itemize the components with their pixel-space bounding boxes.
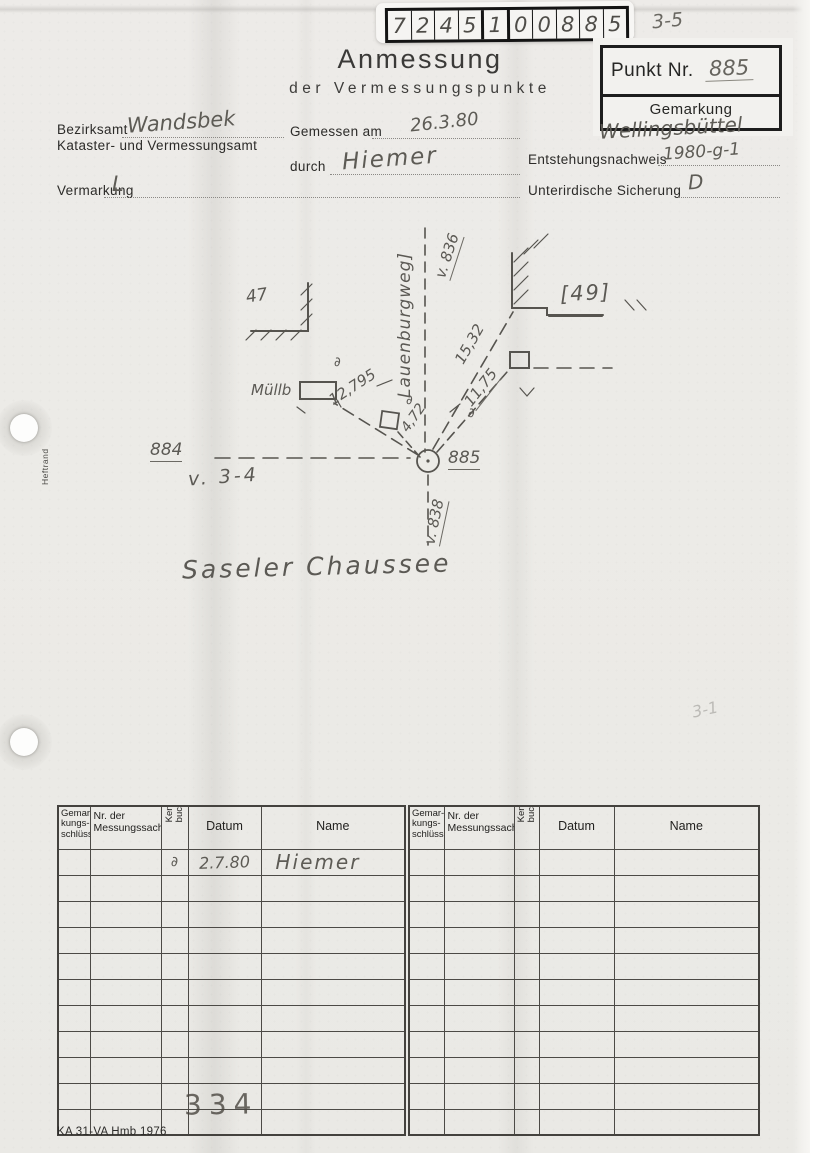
table-row bbox=[58, 901, 405, 927]
entstehungsnachweis-line bbox=[658, 164, 780, 166]
table-row: ∂2.7.80Hiemer bbox=[58, 849, 405, 875]
table-cell bbox=[58, 875, 90, 901]
col-kennbuchst: Kenn- buchst. bbox=[514, 806, 539, 849]
table-row bbox=[409, 927, 759, 953]
table-header-row: Gemar- kungs- schlüssel Nr. der Messungs… bbox=[58, 806, 405, 849]
table-row bbox=[58, 875, 405, 901]
table-cell bbox=[444, 1083, 514, 1109]
table-cell bbox=[614, 1083, 759, 1109]
digit-cell: 1 bbox=[484, 10, 510, 39]
table-cell bbox=[261, 1057, 405, 1083]
table-cell bbox=[539, 849, 614, 875]
table-cell bbox=[261, 1005, 405, 1031]
table-cell bbox=[444, 1057, 514, 1083]
table-cell bbox=[514, 1109, 539, 1135]
table-row bbox=[58, 927, 405, 953]
table-row bbox=[409, 849, 759, 875]
table-cell bbox=[90, 901, 161, 927]
table-cell bbox=[614, 1005, 759, 1031]
table-cell: 2.7.80 bbox=[188, 848, 262, 877]
table-cell bbox=[409, 901, 444, 927]
table-cell bbox=[58, 849, 90, 875]
table-cell bbox=[514, 979, 539, 1005]
table-cell bbox=[514, 875, 539, 901]
table-cell bbox=[444, 927, 514, 953]
scanned-survey-form: Heftrand 7245100885 3-5 Anmessung der Ve… bbox=[0, 0, 824, 1169]
punch-hole-opening bbox=[10, 414, 38, 442]
table-cell bbox=[58, 927, 90, 953]
table-cell bbox=[539, 953, 614, 979]
table-cell bbox=[58, 979, 90, 1005]
partial-symbol: ∂ bbox=[406, 393, 413, 408]
table-cell bbox=[90, 927, 161, 953]
table-cell bbox=[90, 1005, 161, 1031]
table-cell bbox=[188, 901, 261, 927]
table-cell bbox=[614, 875, 759, 901]
table-cell bbox=[539, 1083, 614, 1109]
table-cell bbox=[261, 875, 405, 901]
table-cell bbox=[161, 875, 188, 901]
col-kennbuchst: Kenn- buchst. bbox=[161, 806, 188, 849]
table-cell bbox=[261, 953, 405, 979]
table-cell bbox=[409, 927, 444, 953]
table-row bbox=[409, 953, 759, 979]
table-cell bbox=[58, 1057, 90, 1083]
table-cell bbox=[444, 1005, 514, 1031]
table-cell bbox=[409, 1057, 444, 1083]
table-cell bbox=[614, 927, 759, 953]
table-cell bbox=[514, 953, 539, 979]
table-row bbox=[409, 901, 759, 927]
table-cell bbox=[614, 901, 759, 927]
table-cell bbox=[58, 1005, 90, 1031]
table-cell bbox=[539, 1031, 614, 1057]
table-cell bbox=[514, 1031, 539, 1057]
parcel-47: 47 bbox=[245, 284, 270, 307]
table-cell bbox=[514, 1083, 539, 1109]
point-884-label: 884 bbox=[150, 440, 182, 462]
table-cell bbox=[539, 901, 614, 927]
page-ref-note: 3-5 bbox=[651, 9, 684, 34]
table-cell bbox=[161, 953, 188, 979]
table-row bbox=[409, 1083, 759, 1109]
table-cell bbox=[409, 979, 444, 1005]
digit-cell: 7 bbox=[388, 11, 412, 40]
col-name: Name bbox=[261, 806, 405, 849]
partial-symbol: ∂ bbox=[468, 406, 475, 421]
measurement-log-table-right: Gemar- kungs- schlüssel Nr. der Messungs… bbox=[408, 805, 760, 1136]
digit-cell: 4 bbox=[435, 10, 459, 39]
table-cell bbox=[539, 1057, 614, 1083]
bezirksamt-label: Bezirksamt bbox=[57, 122, 128, 137]
col-gemarkungsschluessel: Gemar- kungs- schlüssel bbox=[58, 806, 90, 849]
table-cell bbox=[161, 927, 188, 953]
table-cell bbox=[188, 979, 261, 1005]
table-cell bbox=[614, 1109, 759, 1135]
col-gemarkungsschluessel: Gemar- kungs- schlüssel bbox=[409, 806, 444, 849]
table-row bbox=[409, 1005, 759, 1031]
table-cell bbox=[409, 1005, 444, 1031]
table-cell bbox=[444, 979, 514, 1005]
table-cell bbox=[444, 901, 514, 927]
durch-label: durch bbox=[290, 159, 326, 174]
table-row bbox=[58, 953, 405, 979]
col-datum: Datum bbox=[539, 806, 614, 849]
table-cell bbox=[90, 1031, 161, 1057]
table-cell bbox=[614, 849, 759, 875]
table-cell bbox=[409, 1031, 444, 1057]
digit-cell: 8 bbox=[556, 9, 580, 38]
table-cell bbox=[539, 1005, 614, 1031]
table-cell bbox=[514, 1057, 539, 1083]
table-cell: Hiemer bbox=[261, 849, 405, 875]
digit-cell: 0 bbox=[509, 10, 533, 39]
digit-cell: 5 bbox=[458, 10, 484, 39]
table-cell bbox=[188, 1031, 261, 1057]
table-cell bbox=[58, 953, 90, 979]
table-cell bbox=[539, 875, 614, 901]
table-cell bbox=[444, 875, 514, 901]
table-cell: ∂ bbox=[161, 849, 188, 875]
punch-hole-opening bbox=[10, 728, 38, 756]
vermarkung-value: L bbox=[112, 172, 124, 196]
table-cell bbox=[514, 901, 539, 927]
table-cell bbox=[409, 849, 444, 875]
table-row bbox=[409, 1057, 759, 1083]
table-cell bbox=[444, 953, 514, 979]
table-row bbox=[409, 979, 759, 1005]
digit-cell: 0 bbox=[533, 10, 557, 39]
form-title: Anmessung bbox=[300, 44, 540, 75]
table-cell bbox=[261, 1083, 405, 1109]
table-cell bbox=[261, 1109, 405, 1135]
table-cell bbox=[90, 875, 161, 901]
table-cell bbox=[161, 979, 188, 1005]
punkt-nr-row: Punkt Nr. 885 bbox=[603, 48, 779, 97]
table-cell bbox=[514, 927, 539, 953]
table-cell bbox=[90, 849, 161, 875]
table-cell bbox=[58, 1031, 90, 1057]
table-cell bbox=[261, 927, 405, 953]
punkt-nr-value: 885 bbox=[705, 55, 754, 82]
table-cell bbox=[514, 1005, 539, 1031]
form-id-footer: KA 31-VA Hmb 1976 bbox=[57, 1126, 167, 1138]
unterirdische-sicherung-label: Unterirdische Sicherung bbox=[528, 183, 681, 198]
table-cell bbox=[90, 953, 161, 979]
col-nr-messungssache: Nr. der Messungssache bbox=[444, 806, 514, 849]
table-cell bbox=[539, 1109, 614, 1135]
gemessen-am-line bbox=[372, 137, 520, 139]
digit-cell: 8 bbox=[580, 9, 604, 38]
table-cell bbox=[614, 979, 759, 1005]
muellb-label: Müllb bbox=[251, 381, 291, 399]
point-885-label: 885 bbox=[448, 448, 480, 470]
col-nr-messungssache: Nr. der Messungssache bbox=[90, 806, 161, 849]
partial-symbol: ∂ bbox=[334, 355, 341, 370]
form-subtitle: der Vermessungspunkte bbox=[270, 80, 570, 98]
table-cell bbox=[161, 1005, 188, 1031]
table-cell bbox=[161, 1057, 188, 1083]
digit-cell: 5 bbox=[603, 9, 626, 38]
measurement-log-table-left: Gemar- kungs- schlüssel Nr. der Messungs… bbox=[57, 805, 406, 1136]
table-cell bbox=[188, 875, 261, 901]
digit-cell: 2 bbox=[411, 11, 435, 40]
punkt-nr-box: Punkt Nr. 885 Gemarkung Wellingsbüttel bbox=[600, 45, 782, 131]
table-cell bbox=[90, 1057, 161, 1083]
table-cell bbox=[161, 1031, 188, 1057]
table-cell bbox=[614, 1031, 759, 1057]
table-cell bbox=[161, 901, 188, 927]
table-cell bbox=[614, 953, 759, 979]
table-cell bbox=[90, 1083, 161, 1109]
parcel-49: [49] bbox=[559, 280, 611, 307]
table-cell bbox=[514, 849, 539, 875]
table-cell bbox=[261, 901, 405, 927]
survey-point-885-dot bbox=[426, 459, 429, 462]
table-row bbox=[409, 875, 759, 901]
table-cell bbox=[409, 875, 444, 901]
table-cell bbox=[58, 901, 90, 927]
table-cell bbox=[261, 1031, 405, 1057]
vermarkung-line bbox=[104, 196, 520, 198]
table-cell bbox=[409, 1109, 444, 1135]
unterirdische-sicherung-line bbox=[678, 196, 780, 198]
table-cell bbox=[539, 927, 614, 953]
table-cell bbox=[188, 1057, 261, 1083]
table-row bbox=[58, 1005, 405, 1031]
kataster-label: Kataster- und Vermessungsamt bbox=[57, 138, 257, 153]
entstehungsnachweis-label: Entstehungsnachweis bbox=[528, 152, 667, 167]
table-cell bbox=[188, 953, 261, 979]
table-cell bbox=[58, 1083, 90, 1109]
gemessen-am-label: Gemessen am bbox=[290, 124, 382, 139]
table-cell bbox=[409, 953, 444, 979]
table-row bbox=[58, 1057, 405, 1083]
unterirdische-sicherung-value: D bbox=[687, 170, 704, 195]
table-cell bbox=[188, 927, 261, 953]
table-row bbox=[409, 1031, 759, 1057]
stamp-334: 334 bbox=[184, 1087, 259, 1121]
punkt-nr-label: Punkt Nr. bbox=[611, 60, 694, 82]
table-cell bbox=[444, 1031, 514, 1057]
table-cell bbox=[188, 1005, 261, 1031]
table-row bbox=[58, 1031, 405, 1057]
survey-sketch bbox=[40, 200, 800, 650]
table-cell bbox=[90, 979, 161, 1005]
table-header-row: Gemar- kungs- schlüssel Nr. der Messungs… bbox=[409, 806, 759, 849]
table-cell bbox=[614, 1057, 759, 1083]
table-cell bbox=[409, 1083, 444, 1109]
table-cell bbox=[261, 979, 405, 1005]
survey-stone-square-right bbox=[510, 352, 529, 368]
table-row bbox=[58, 979, 405, 1005]
point-number-sticker: 7245100885 bbox=[376, 1, 634, 43]
col-datum: Datum bbox=[188, 806, 261, 849]
table-cell bbox=[444, 1109, 514, 1135]
table-cell bbox=[539, 979, 614, 1005]
table-row bbox=[409, 1109, 759, 1135]
table-cell bbox=[444, 849, 514, 875]
col-name: Name bbox=[614, 806, 759, 849]
